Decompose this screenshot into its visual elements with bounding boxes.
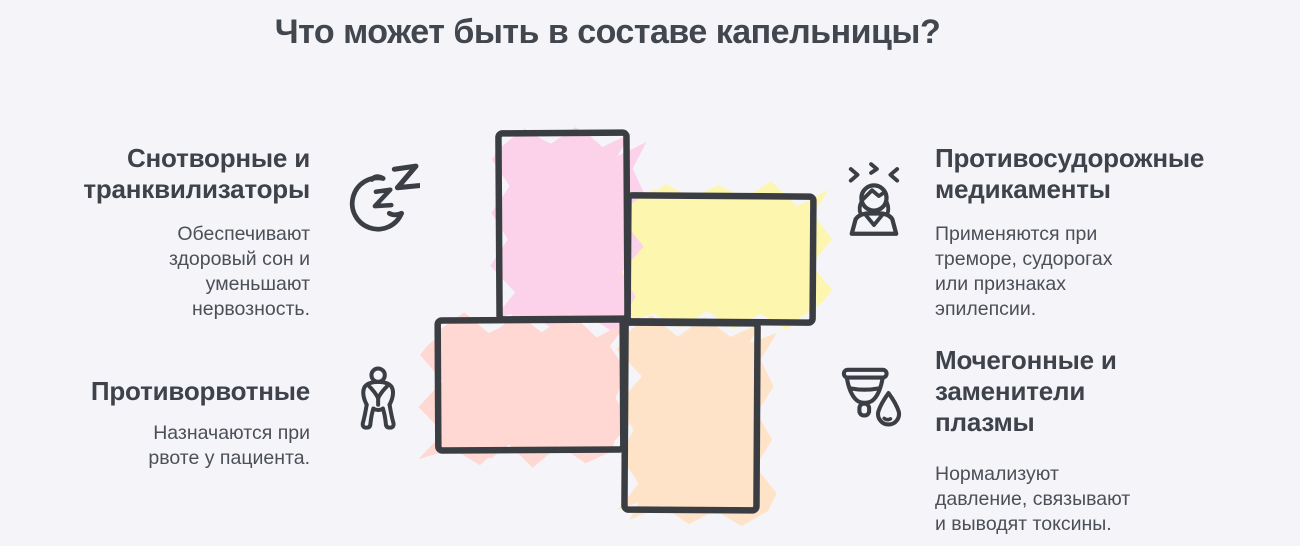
infographic: Что может быть в составе капельницы? Сно… — [0, 0, 1300, 546]
anticonvulsants-description: Применяются при треморе, судорогах или п… — [935, 222, 1245, 322]
pink-square-fill — [490, 127, 634, 326]
tremor-person-icon — [844, 158, 902, 238]
diuretics-description: Нормализуют давление, связывают и выводя… — [935, 462, 1245, 537]
sedatives-description: Обеспечивают здоровый сон и уменьшают не… — [20, 222, 310, 322]
antiemetics-title: Противорвотные — [20, 376, 310, 407]
anticonvulsants-title: Противосудорожные медикаменты — [935, 143, 1245, 205]
salmon-square-fill — [431, 312, 630, 458]
nausea-person-icon — [360, 366, 402, 434]
sleep-moon-icon — [338, 160, 420, 242]
cup-droplet-icon — [840, 363, 906, 429]
orange-square-fill — [617, 315, 763, 518]
infographic-canvas: { "title": "Что может быть в составе кап… — [0, 0, 1300, 546]
antiemetics-description: Назначаются при рвоте у пациента. — [20, 421, 310, 471]
sedatives-title: Снотворные и транквилизаторы — [20, 143, 310, 205]
diuretics-title: Мочегонные и заменители плазмы — [935, 345, 1245, 439]
